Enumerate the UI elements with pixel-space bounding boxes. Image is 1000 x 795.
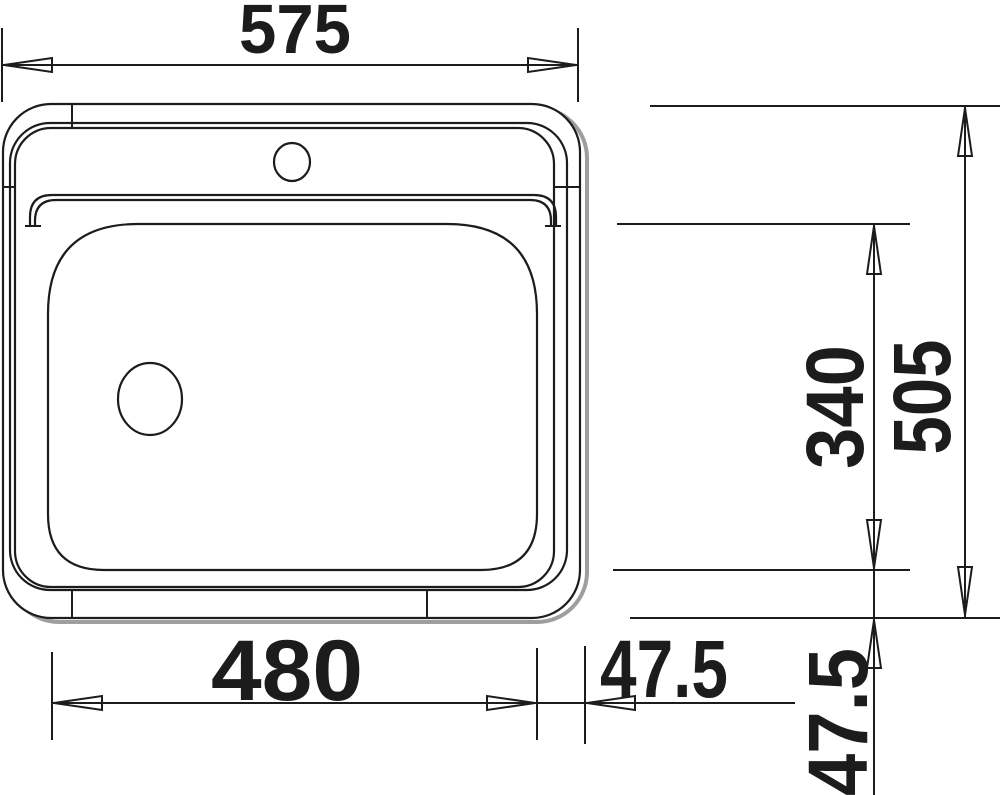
dim-bowl-depth: 340 47.5 bbox=[790, 224, 885, 795]
dim-label-overall-width: 575 bbox=[239, 0, 351, 68]
sink-dimension-diagram: 575 480 47.5 340 47.5 bbox=[0, 0, 1000, 795]
dim-label-bowl-depth: 340 bbox=[790, 345, 881, 469]
technical-drawing: 575 480 47.5 340 47.5 bbox=[0, 0, 1000, 795]
dim-bowl-width: 480 47.5 bbox=[52, 623, 795, 744]
dim-overall-depth: 505 bbox=[877, 106, 972, 617]
dim-label-side-offset: 47.5 bbox=[600, 624, 728, 715]
dim-label-overall-depth: 505 bbox=[877, 340, 968, 455]
dim-label-bowl-width: 480 bbox=[211, 623, 363, 719]
dim-overall-width: 575 bbox=[2, 0, 578, 102]
sink-top-view bbox=[3, 104, 587, 622]
dim-label-bottom-offset: 47.5 bbox=[791, 648, 885, 795]
